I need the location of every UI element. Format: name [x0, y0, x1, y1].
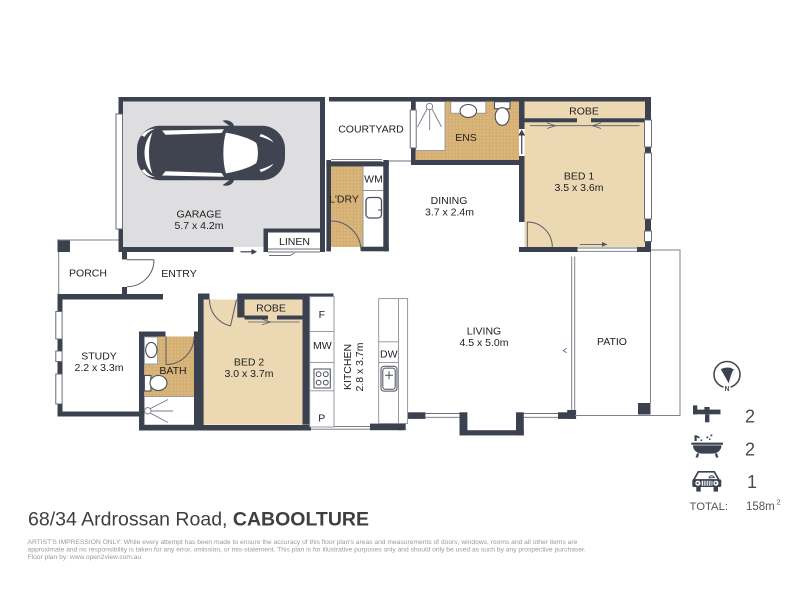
- svg-text:2: 2: [745, 407, 755, 427]
- svg-text:L'DRY: L'DRY: [329, 194, 359, 206]
- svg-text:COURTYARD: COURTYARD: [338, 124, 404, 136]
- svg-text:PATIO: PATIO: [597, 336, 627, 348]
- svg-text:ENS: ENS: [455, 132, 477, 144]
- svg-text:approximate and no responsibil: approximate and no responsibility is tak…: [28, 547, 586, 554]
- svg-text:2: 2: [777, 498, 781, 507]
- svg-text:3.7 x 2.4m: 3.7 x 2.4m: [425, 207, 474, 219]
- svg-text:ROBE: ROBE: [569, 106, 599, 118]
- svg-text:LINEN: LINEN: [279, 236, 310, 248]
- svg-text:3.5 x 3.6m: 3.5 x 3.6m: [554, 182, 603, 194]
- svg-text:LIVING: LIVING: [467, 326, 501, 338]
- svg-text:DINING: DINING: [431, 195, 468, 207]
- svg-text:68/34 Ardrossan Road, CABOOLTU: 68/34 Ardrossan Road, CABOOLTURE: [28, 509, 369, 531]
- svg-text:2: 2: [745, 440, 755, 460]
- svg-text:ENTRY: ENTRY: [161, 268, 196, 280]
- svg-text:158m: 158m: [746, 501, 775, 513]
- svg-text:DW: DW: [380, 349, 398, 361]
- svg-text:BATH: BATH: [159, 365, 186, 377]
- svg-text:STUDY: STUDY: [81, 351, 117, 363]
- svg-text:N: N: [724, 386, 729, 393]
- svg-text:2.2 x 3.3m: 2.2 x 3.3m: [74, 362, 123, 374]
- svg-text:Floor plan by: www.open2view.c: Floor plan by: www.open2view.com.au: [28, 554, 142, 561]
- svg-text:1: 1: [747, 472, 757, 492]
- svg-text:5.7 x 4.2m: 5.7 x 4.2m: [174, 220, 223, 232]
- svg-text:ROBE: ROBE: [256, 303, 286, 315]
- svg-text:BED 2: BED 2: [234, 357, 265, 369]
- svg-text:ARTIST'S IMPRESSION ONLY: Whil: ARTIST'S IMPRESSION ONLY: While every at…: [28, 539, 578, 546]
- svg-text:2.8 x 3.7m: 2.8 x 3.7m: [354, 342, 366, 391]
- svg-text:MW: MW: [313, 340, 332, 352]
- svg-text:BED 1: BED 1: [564, 171, 595, 183]
- svg-text:P: P: [318, 413, 325, 425]
- svg-text:4.5 x 5.0m: 4.5 x 5.0m: [459, 337, 508, 349]
- svg-text:GARAGE: GARAGE: [177, 209, 222, 221]
- svg-text:PORCH: PORCH: [69, 268, 107, 280]
- svg-text:TOTAL:: TOTAL:: [690, 501, 729, 513]
- svg-text:KITCHEN: KITCHEN: [342, 344, 354, 390]
- svg-text:F: F: [319, 309, 325, 321]
- svg-text:3.0 x 3.7m: 3.0 x 3.7m: [224, 368, 273, 380]
- svg-text:WM: WM: [364, 174, 383, 186]
